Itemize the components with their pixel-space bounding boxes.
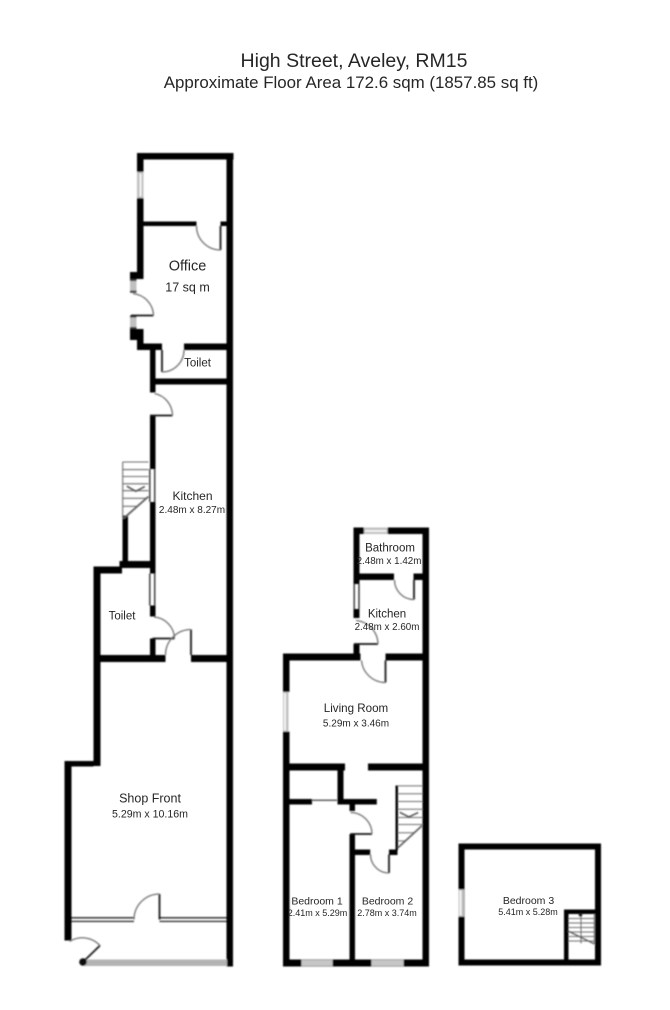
svg-text:High Street, Aveley, RM15: High Street, Aveley, RM15 xyxy=(241,50,468,72)
svg-text:2.78m x 3.74m: 2.78m x 3.74m xyxy=(357,908,417,918)
svg-text:Kitchen: Kitchen xyxy=(172,489,212,503)
svg-text:Approximate Floor Area 172.6 s: Approximate Floor Area 172.6 sqm (1857.8… xyxy=(164,73,539,92)
svg-text:Toilet: Toilet xyxy=(109,611,137,623)
svg-text:Bedroom 2: Bedroom 2 xyxy=(362,896,414,908)
svg-text:Toilet: Toilet xyxy=(184,358,212,370)
svg-text:5.29m x 3.46m: 5.29m x 3.46m xyxy=(323,719,389,730)
svg-text:Kitchen: Kitchen xyxy=(368,609,406,621)
svg-text:Shop Front: Shop Front xyxy=(119,792,181,806)
svg-text:2.48m x 8.27m: 2.48m x 8.27m xyxy=(159,505,225,516)
svg-text:2.48m x 2.60m: 2.48m x 2.60m xyxy=(355,622,420,633)
svg-text:17 sq m: 17 sq m xyxy=(165,280,209,294)
svg-text:5.29m x 10.16m: 5.29m x 10.16m xyxy=(112,809,188,821)
svg-text:Bedroom 1: Bedroom 1 xyxy=(291,896,343,908)
svg-text:Bedroom 3: Bedroom 3 xyxy=(503,895,555,907)
svg-text:2.41m x 5.29m: 2.41m x 5.29m xyxy=(288,908,348,918)
svg-text:Office: Office xyxy=(169,259,207,275)
svg-text:Bathroom: Bathroom xyxy=(365,543,415,555)
svg-text:5.41m x 5.28m: 5.41m x 5.28m xyxy=(498,907,558,917)
svg-text:Living Room: Living Room xyxy=(324,702,388,715)
svg-text:2.48m x 1.42m: 2.48m x 1.42m xyxy=(357,556,422,567)
